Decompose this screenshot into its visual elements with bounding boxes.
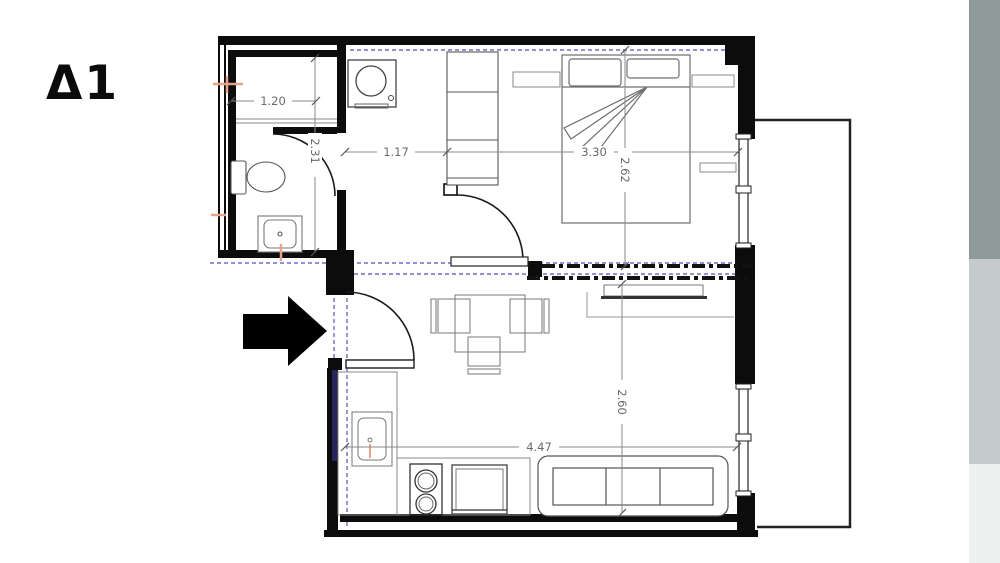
balcony-outline <box>755 120 850 527</box>
washing-machine-icon <box>348 60 396 108</box>
chair <box>510 299 542 333</box>
dim-bedroom-depth: 2.62 <box>618 157 632 183</box>
dim-hallway-width: 1.17 <box>383 145 409 159</box>
kitchen-sink-icon <box>352 412 392 466</box>
bedroom-door <box>444 184 528 266</box>
dim-bedroom-width: 3.30 <box>581 145 607 159</box>
kitchen <box>338 372 530 515</box>
dim-living-width: 4.47 <box>526 440 552 454</box>
dining-set <box>431 295 549 374</box>
chair <box>438 299 470 333</box>
dim-living-depth: 2.60 <box>615 389 629 415</box>
dividing-wall-dashdot <box>527 266 753 278</box>
bathroom-door <box>273 134 335 196</box>
living-window <box>736 384 751 496</box>
stove-icon <box>410 464 442 515</box>
dimension-labels: 1.20 2.31 1.17 3.30 2.62 2.60 4.47 <box>254 94 632 454</box>
floor-plan-drawing: 1.20 2.31 1.17 3.30 2.62 2.60 4.47 <box>0 0 1000 563</box>
dim-bathroom-depth: 2.31 <box>308 138 322 164</box>
entrance-door <box>346 292 414 368</box>
entrance-arrow-icon <box>243 296 327 366</box>
sofa-icon <box>538 456 728 516</box>
toilet-icon <box>231 161 285 194</box>
kitchen-counter <box>338 372 397 515</box>
floor-plan-page: Δ1 <box>0 0 1000 563</box>
dim-bathroom-width: 1.20 <box>260 94 286 108</box>
wall-shelf <box>587 285 734 317</box>
bed <box>562 55 690 223</box>
wardrobe <box>447 52 498 185</box>
dining-table <box>455 295 525 352</box>
oven-icon <box>452 465 507 514</box>
